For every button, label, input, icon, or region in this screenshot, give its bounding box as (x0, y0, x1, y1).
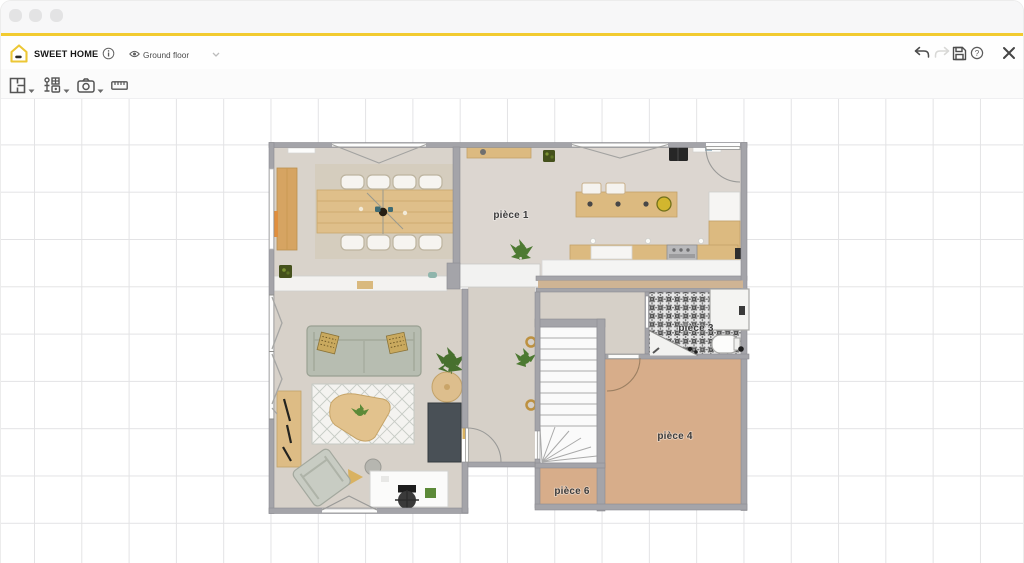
svg-text:pièce 3: pièce 3 (678, 323, 714, 334)
svg-text:pièce 1: pièce 1 (493, 210, 529, 221)
svg-text:pièce 4: pièce 4 (657, 431, 693, 442)
svg-text:pièce 6: pièce 6 (554, 486, 590, 497)
